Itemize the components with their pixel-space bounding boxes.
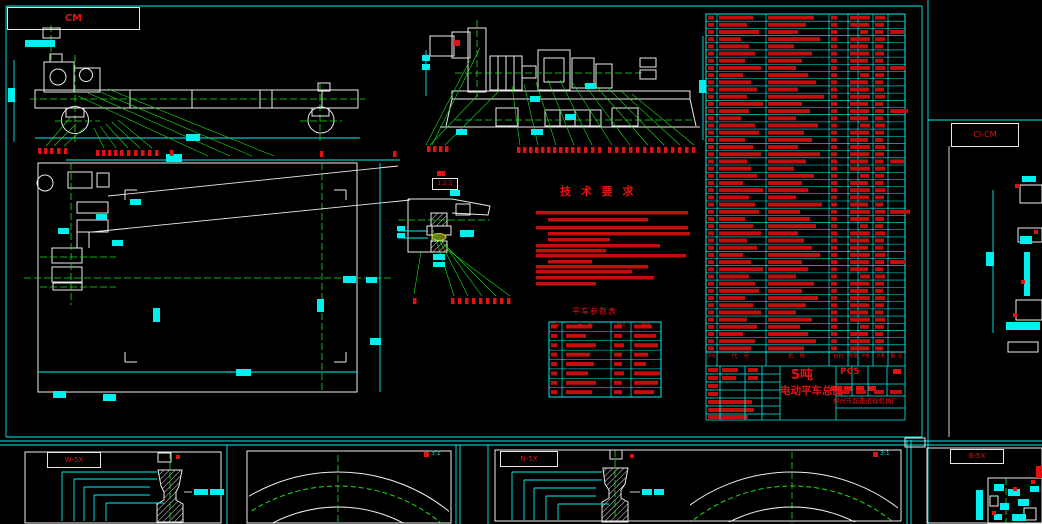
detail-scale-label: 1:2.5 — [432, 178, 458, 190]
layout-tab-label: CM — [65, 14, 82, 24]
section-label-mid-wheel: N-5X — [500, 451, 558, 467]
plan-view — [37, 163, 357, 392]
param-header-unit: 单位 — [611, 324, 631, 329]
title-block-drawing-name: 电动平车总图 — [780, 386, 843, 397]
leader-lines — [46, 48, 694, 296]
param-header-name: 名 称 — [562, 323, 611, 328]
layout-tab: CM — [7, 7, 140, 30]
parts-header-total-weight: 总重 — [873, 355, 888, 360]
technical-requirements-text-lines — [536, 211, 690, 286]
arc-scale-label-1: 3:1 — [431, 451, 441, 457]
title-block-drawing-no: PC5 — [840, 368, 859, 377]
wheel-hub-detail-view — [408, 199, 490, 252]
parts-header-remark: 备 注 — [888, 354, 905, 360]
side-elevation-view — [35, 54, 358, 134]
parts-list-table — [706, 14, 910, 352]
title-block-company: 郑州市起重运输机械厂 — [833, 398, 898, 405]
detail-scale-text: 1:2.5 — [437, 181, 452, 187]
param-table-title: 平车参数表 — [572, 308, 617, 316]
cad-drawing-sheet: CM 技 术 要 求 平车参数表 序号 名 称 单位 数值 序号 代 号 名 称… — [0, 0, 1042, 524]
section-label-side-panel-text: CI-CM — [973, 131, 996, 139]
section-label-right-detail: B-5X — [950, 449, 1004, 464]
parts-header-code: 代 号 — [717, 354, 766, 360]
title-block-tonnage: 5吨 — [791, 369, 813, 382]
section-label-side-panel: CI-CM — [951, 123, 1019, 147]
outline-lines — [92, 146, 949, 492]
parameter-table — [549, 322, 661, 397]
parts-header-qty: 数量 — [848, 355, 858, 360]
section-label-right-detail-text: B-5X — [969, 453, 986, 460]
parts-header-unit-weight: 单重 — [858, 355, 873, 360]
parts-header-name: 名 称 — [766, 354, 829, 360]
dimension-text-blocks — [8, 40, 1040, 521]
param-header-seq: 序号 — [549, 324, 562, 329]
tech-requirements-title: 技 术 要 求 — [560, 186, 637, 197]
section-label-left-wheel-text: W-5X — [65, 457, 83, 464]
section-label-left-wheel: W-5X — [47, 452, 101, 468]
end-view — [430, 28, 700, 127]
arc-scale-label-2: 3:1 — [880, 451, 890, 457]
parts-header-material: 材料 — [829, 355, 848, 360]
section-label-mid-wheel-text: N-5X — [520, 456, 537, 463]
param-header-value: 数值 — [631, 324, 661, 329]
drawing-canvas — [0, 0, 1042, 524]
parts-header-seq: 序号 — [706, 355, 717, 360]
